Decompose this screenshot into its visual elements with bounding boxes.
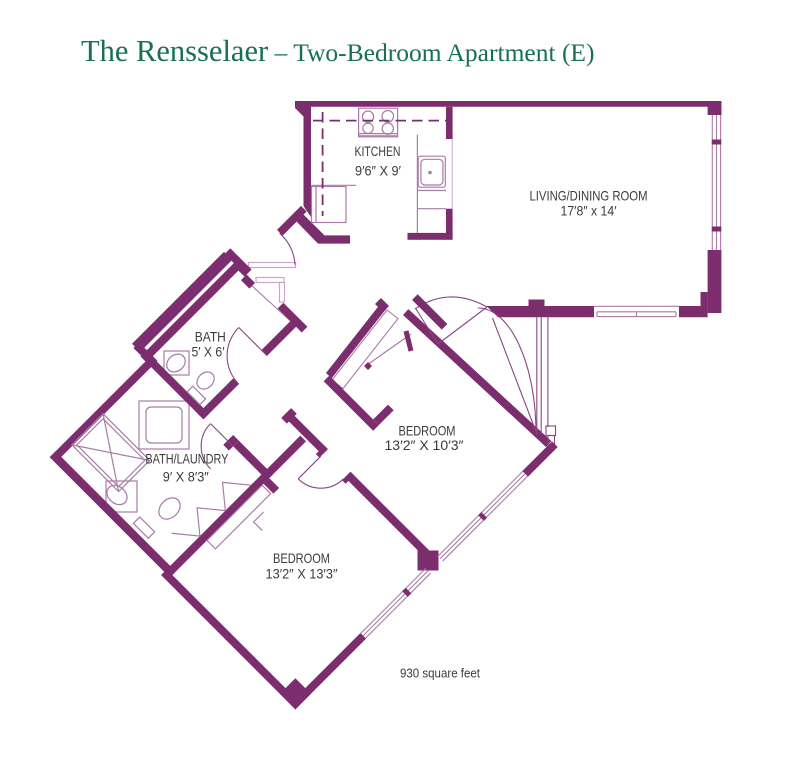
svg-text:5′ X 6′: 5′ X 6′ xyxy=(192,344,225,360)
svg-text:9′ X 8′3″: 9′ X 8′3″ xyxy=(163,469,209,485)
svg-text:BATH: BATH xyxy=(195,329,226,345)
svg-text:13′2″ X 10′3″: 13′2″ X 10′3″ xyxy=(385,437,464,453)
svg-text:BATH/LAUNDRY: BATH/LAUNDRY xyxy=(145,451,229,467)
svg-text:13′2″ X 13′3″: 13′2″ X 13′3″ xyxy=(266,566,338,582)
svg-text:930 square feet: 930 square feet xyxy=(400,666,480,681)
svg-text:BEDROOM: BEDROOM xyxy=(273,550,330,566)
svg-text:The Rensselaer – Two-Bedroom A: The Rensselaer – Two-Bedroom Apartment (… xyxy=(81,34,595,68)
svg-text:17′8″ x 14′: 17′8″ x 14′ xyxy=(561,203,617,219)
svg-text:LIVING/DINING ROOM: LIVING/DINING ROOM xyxy=(530,188,648,204)
svg-text:9′6″ X 9′: 9′6″ X 9′ xyxy=(355,163,401,179)
svg-text:KITCHEN: KITCHEN xyxy=(355,143,401,159)
